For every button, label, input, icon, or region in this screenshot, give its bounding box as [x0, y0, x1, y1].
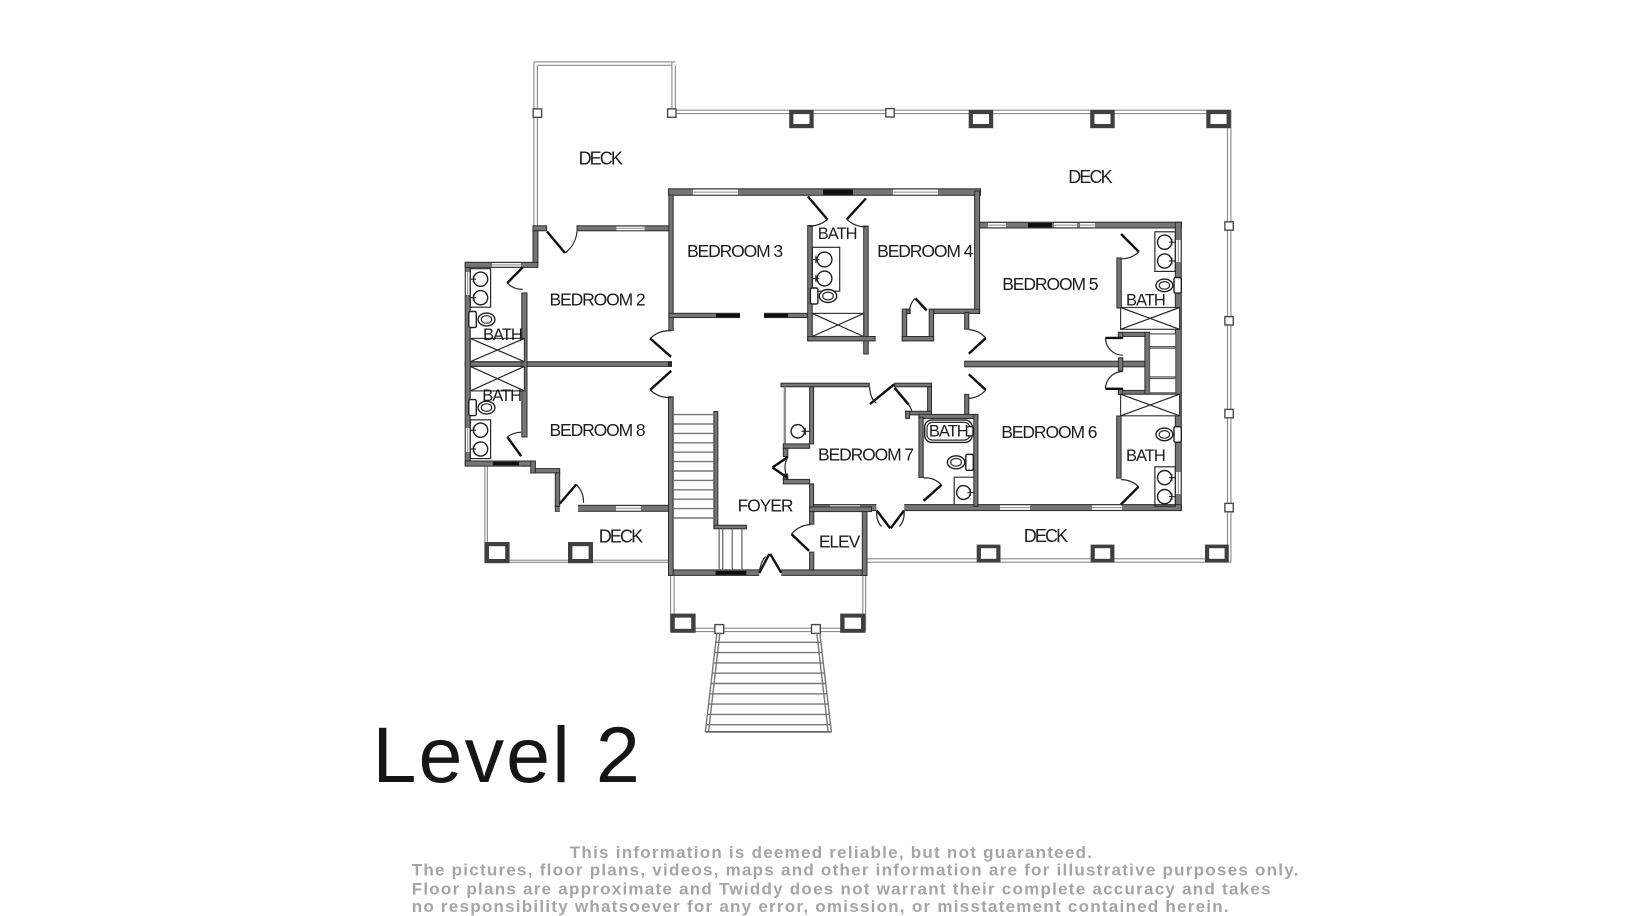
- svg-text:BATH: BATH: [1126, 447, 1165, 465]
- svg-text:BEDROOM 2: BEDROOM 2: [549, 290, 644, 310]
- svg-text:BEDROOM 5: BEDROOM 5: [1002, 274, 1097, 294]
- svg-text:DECK: DECK: [579, 149, 623, 169]
- svg-text:BEDROOM 4: BEDROOM 4: [877, 241, 973, 261]
- svg-text:DECK: DECK: [1024, 526, 1068, 546]
- svg-text:no responsibility whatsoever f: no responsibility whatsoever for any err…: [412, 897, 1230, 916]
- svg-text:ELEV: ELEV: [819, 532, 861, 552]
- svg-text:This information is deemed rel: This information is deemed reliable, but…: [570, 843, 1093, 862]
- svg-text:BATH: BATH: [818, 225, 857, 243]
- svg-text:BATH: BATH: [929, 422, 968, 440]
- svg-text:FOYER: FOYER: [738, 496, 793, 516]
- svg-text:Floor plans are approximate an: Floor plans are approximate and Twiddy d…: [412, 879, 1272, 898]
- svg-text:BATH: BATH: [483, 326, 522, 344]
- svg-text:BEDROOM 3: BEDROOM 3: [687, 241, 782, 261]
- svg-text:BEDROOM 8: BEDROOM 8: [549, 420, 644, 440]
- svg-text:BEDROOM 6: BEDROOM 6: [1001, 422, 1096, 442]
- svg-text:The pictures, floor plans, vid: The pictures, floor plans, videos, maps …: [412, 861, 1300, 880]
- svg-text:BATH: BATH: [1126, 292, 1165, 310]
- svg-text:BEDROOM 7: BEDROOM 7: [818, 445, 913, 465]
- svg-text:DECK: DECK: [1068, 167, 1112, 187]
- svg-text:BATH: BATH: [482, 387, 521, 405]
- svg-text:Level 2: Level 2: [373, 710, 642, 799]
- svg-text:DECK: DECK: [599, 527, 643, 547]
